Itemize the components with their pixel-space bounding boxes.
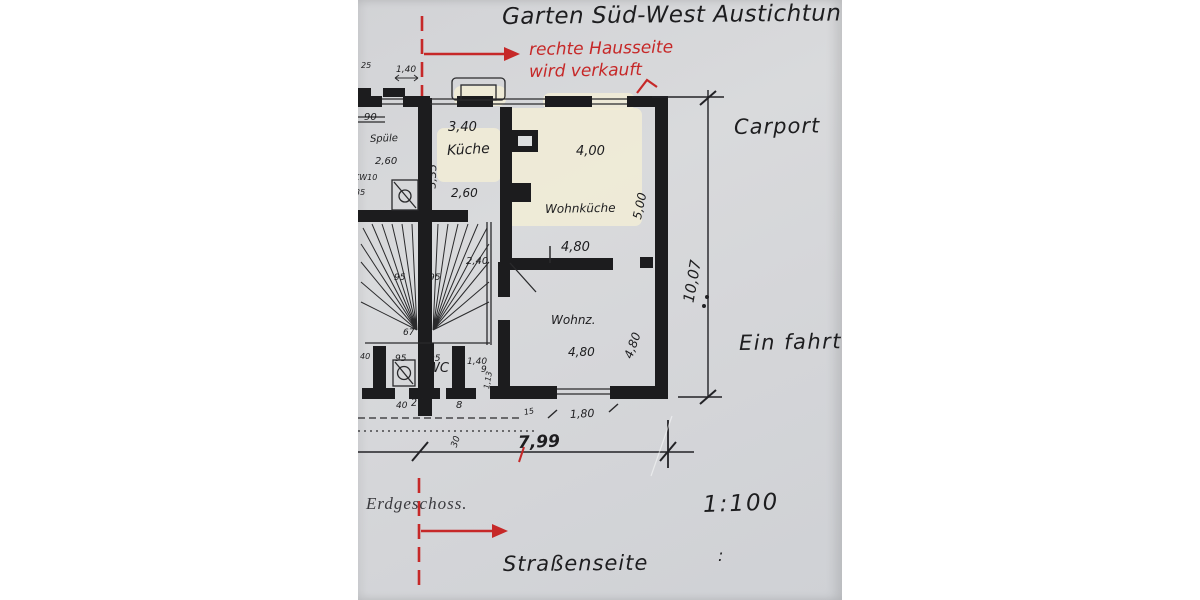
dim-95-b: 95	[429, 274, 440, 283]
dim-1-40-top: 1,40	[396, 66, 416, 75]
dim-8: 8	[456, 401, 462, 411]
dim-4-80-top: 4,80	[561, 241, 590, 254]
dim-95-d: 95	[429, 355, 440, 364]
dim-2-60-left: 2,60	[375, 157, 397, 167]
driveway-label: Ein fahrt	[739, 331, 842, 354]
room-sink: Spüle	[370, 134, 398, 145]
floorplan-photo: Garten Süd-West Austichtung rechte Hauss…	[358, 0, 842, 600]
colon-mark: :	[718, 548, 723, 564]
red-flourish	[637, 80, 657, 93]
dim-4-80-bottom: 4,80	[568, 346, 595, 358]
dim-3-40: 3,40	[448, 121, 477, 134]
stair-treads-left	[361, 224, 417, 330]
carport-label: Carport	[734, 115, 821, 138]
appliance-label: KW10	[358, 174, 377, 182]
screenshot: Garten Süd-West Austichtung rechte Hauss…	[0, 0, 1200, 600]
dim-27: 27	[411, 398, 424, 409]
dim-95-c: 95	[395, 355, 406, 364]
red-note-line2: wird verkauft	[529, 62, 642, 81]
dim-1-80: 1,80	[570, 408, 595, 420]
dimension-lines	[358, 90, 724, 468]
dim-95-a: 95	[394, 274, 405, 283]
room-kitchen: Küche	[447, 142, 491, 158]
dim-3-35: 3,35	[427, 164, 439, 189]
dim-4-00: 4,00	[576, 145, 605, 158]
dim-25: 25	[361, 62, 371, 70]
dim-40-b: 40	[396, 402, 407, 411]
floor-label: Erdgeschoss.	[366, 495, 468, 512]
dim-90: 90	[364, 113, 377, 123]
dim-2-40: 2,40	[466, 257, 488, 267]
dim-35: 35	[358, 189, 365, 197]
red-note-line1: rechte Hausseite	[529, 39, 673, 59]
dim-5-b: 5	[458, 364, 463, 372]
dim-5-a: 5	[377, 365, 382, 373]
dim-67: 67	[403, 329, 414, 338]
scale-label: 1:100	[703, 491, 780, 517]
room-living-kitchen: Wohnküche	[545, 202, 616, 215]
chimney-flue	[518, 136, 532, 146]
dim-2-60: 2,60	[451, 187, 478, 199]
plan-title: Garten Süd-West Austichtung	[502, 2, 842, 29]
dim-40-a: 40	[360, 353, 370, 361]
stair-treads-right	[433, 224, 489, 330]
room-living: Wohnz.	[551, 314, 596, 326]
street-side-label: Straßenseite	[503, 553, 649, 575]
dim-7-99: 7,99	[518, 434, 561, 452]
